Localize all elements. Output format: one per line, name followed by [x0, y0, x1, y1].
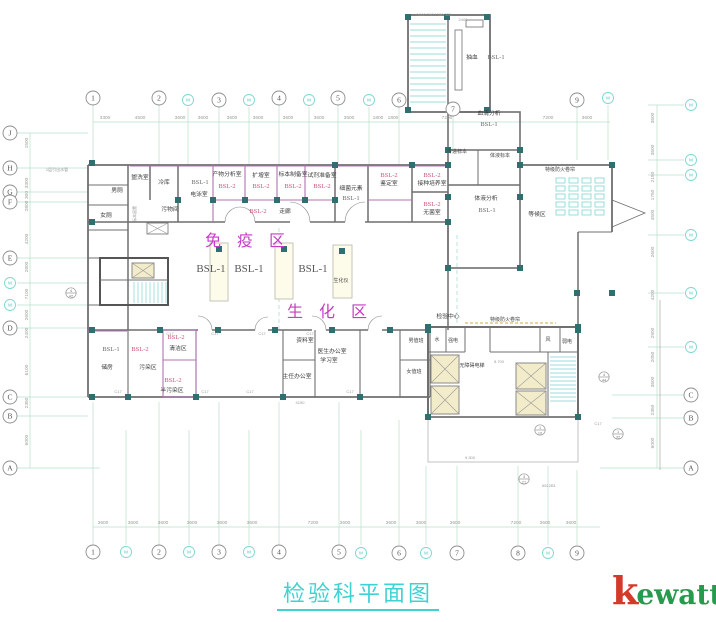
structural-column: [574, 290, 580, 296]
structural-column: [89, 160, 95, 166]
room-label: C17: [114, 389, 122, 394]
dim-text: 2150: [650, 171, 656, 182]
axis-label: A: [688, 464, 694, 473]
waiting-chair: [556, 210, 565, 215]
structural-column: [157, 327, 163, 333]
dim-text: 2800: [24, 261, 30, 272]
room-label: BSL-2: [218, 183, 235, 190]
dim-text: 3600: [217, 520, 228, 526]
room-label: BSL-1: [191, 179, 208, 186]
room-label: BSL-1: [102, 346, 119, 353]
logo-letter-k: k: [612, 568, 638, 613]
room-label: BSL-2: [313, 183, 330, 190]
axis-label: M: [546, 551, 550, 556]
room-label: 特级防火卷帘: [545, 166, 575, 173]
axis-label: 6: [397, 549, 401, 558]
room-label: 特级防火卷帘: [490, 316, 520, 323]
lab-partitions: [88, 165, 447, 397]
room-label: 接种培养室: [418, 179, 447, 187]
bubble-top: 4: [70, 289, 72, 293]
axis-label: M: [307, 98, 311, 103]
axis-label: 1: [91, 548, 95, 557]
dim-text: 3300: [100, 115, 111, 121]
room-label: 男值班: [408, 337, 423, 344]
logo-letters-ewatt: ewatt: [636, 578, 716, 611]
room-label: 等候区: [528, 210, 546, 218]
waiting-chair: [556, 194, 565, 199]
structural-column: [329, 327, 335, 333]
bubble-bottom: 44: [602, 378, 606, 382]
dim-text: 3600: [314, 115, 325, 121]
axis-label: C: [7, 393, 12, 402]
dim-text: 2050: [650, 351, 656, 362]
bubble-bottom: 32: [616, 435, 620, 439]
room-label: 标本留置: [131, 206, 137, 222]
room-label: 生化仪: [333, 277, 348, 284]
waiting-chair: [569, 210, 578, 215]
axis-label: M: [8, 303, 12, 308]
dim-text: 7200: [442, 115, 453, 121]
structural-column: [274, 197, 280, 203]
axis-label: M: [8, 281, 12, 286]
waiting-chair: [595, 202, 604, 207]
drawing-title: 检验科平面图: [0, 576, 716, 608]
room-label: 6512B1: [542, 483, 557, 488]
dim-text: 6000: [650, 437, 656, 448]
dim-text: 2800: [24, 200, 30, 211]
structural-column: [409, 162, 415, 168]
dim-text: 3600: [650, 376, 656, 387]
axis-label: M: [187, 550, 191, 555]
waiting-chair: [595, 178, 604, 183]
structural-column: [339, 248, 345, 254]
bubble-top: 4: [603, 373, 605, 377]
room-label: 走廊: [279, 207, 291, 215]
axis-label: 8: [516, 549, 520, 558]
dim-text: 3600: [283, 115, 294, 121]
dim-text: 3600: [386, 520, 397, 526]
axis-label: M: [247, 98, 251, 103]
room-label: 8.700: [494, 359, 505, 364]
waiting-chair: [569, 202, 578, 207]
room-label: BSL-1: [234, 263, 263, 275]
dim-text: 7200: [308, 520, 319, 526]
room-label: 传递标本: [447, 148, 467, 155]
room-label: 扩增室: [252, 171, 270, 179]
axis-label: 7: [455, 549, 459, 558]
dim-text: 4500: [650, 209, 656, 220]
room-label: C17: [201, 389, 209, 394]
waiting-chair: [556, 202, 565, 207]
axis-label: M: [689, 291, 693, 296]
dim-text: 4200: [650, 289, 656, 300]
dim-text: 1800: [373, 115, 384, 121]
room-label: 产物分析室: [213, 170, 242, 178]
room-label: 储房: [101, 363, 113, 371]
waiting-chair: [556, 186, 565, 191]
structural-column: [332, 197, 338, 203]
room-label: 污物间: [161, 205, 179, 213]
axis-label: 1: [91, 94, 95, 103]
dim-text: 1800: [388, 115, 399, 121]
axis-label: 5: [337, 548, 341, 557]
room-label: 女值班: [406, 368, 421, 375]
axis-label: 9: [575, 96, 579, 105]
dim-text: 7200: [543, 115, 554, 121]
room-label: 清洁区: [169, 344, 187, 352]
room-label: BSL-1: [196, 263, 225, 275]
room-label: 半污染区: [160, 386, 183, 394]
structural-column: [575, 414, 581, 420]
room-label: 资料室: [296, 336, 314, 344]
structural-column: [89, 394, 95, 400]
axis-label: 9: [575, 549, 579, 558]
dim-text: 2900: [650, 327, 656, 338]
axis-label: 3: [217, 548, 221, 557]
structural-column: [445, 194, 451, 200]
axis-label: M: [689, 173, 693, 178]
axis-label: M: [359, 551, 363, 556]
dim-text: 3600: [566, 520, 577, 526]
axis-label: 7: [451, 105, 455, 114]
waiting-chair: [595, 186, 604, 191]
structural-column: [445, 219, 451, 225]
axis-label: C: [688, 391, 693, 400]
room-label: BSL-2: [252, 183, 269, 190]
axis-label: M: [124, 550, 128, 555]
room-label: BSL-1: [487, 54, 504, 61]
room-label: 女厕: [100, 211, 112, 219]
dim-text: 3600: [416, 520, 427, 526]
room-label: BSL-2: [284, 183, 301, 190]
dim-text: 3600: [227, 115, 238, 121]
waiting-chair: [582, 194, 591, 199]
structural-column: [484, 14, 490, 20]
axis-label: M: [689, 233, 693, 238]
axis-label: 2: [157, 548, 161, 557]
dim-text: 7200: [511, 520, 522, 526]
structural-column: [517, 147, 523, 153]
bubble-top: 1: [539, 426, 541, 430]
axis-label: M: [247, 550, 251, 555]
axis-label: H: [7, 164, 13, 173]
room-label: 体液分析: [474, 194, 497, 202]
structural-column: [280, 394, 286, 400]
room-label: 强电: [448, 337, 458, 344]
room-label: 无障碍电梯: [459, 362, 484, 369]
waiting-chair: [569, 178, 578, 183]
room-label: 免 疫 区: [205, 232, 291, 250]
bubble-top: 3: [523, 475, 525, 479]
bubble-top: 1: [617, 430, 619, 434]
structural-column: [175, 197, 181, 203]
waiting-chair: [595, 194, 604, 199]
room-label: 生 化 区: [287, 303, 373, 321]
room-label: 抽血: [466, 53, 478, 61]
structural-column: [425, 414, 431, 420]
room-label: C17: [211, 331, 219, 336]
axis-label: 4: [277, 94, 281, 103]
right-room-block: [448, 112, 520, 268]
room-label: 电泳室: [190, 190, 208, 198]
axis-label: B: [688, 414, 693, 423]
waiting-chair: [582, 202, 591, 207]
room-label: C17: [306, 331, 314, 336]
axis-label: 6: [397, 96, 401, 105]
room-label: 鉴定室: [380, 179, 398, 187]
room-label: 9.300: [465, 455, 476, 460]
structural-column: [445, 162, 451, 168]
axis-label: M: [367, 98, 371, 103]
floor-plan-svg: 12M3M4M5M679M1M2M3M45M6M78M9JHGFEMMDCBAM…: [0, 0, 716, 622]
structural-column: [89, 327, 95, 333]
grid-lines: [17, 105, 684, 545]
axis-label: E: [8, 254, 13, 263]
room-label: 冷库: [158, 178, 170, 186]
room-label: 检验中心: [436, 312, 459, 320]
floor-plan-canvas: 12M3M4M5M679M1M2M3M45M6M78M9JHGFEMMDCBAM…: [0, 0, 716, 622]
structural-column: [242, 197, 248, 203]
dim-text: 3600: [582, 115, 593, 121]
room-label: BSL-1: [342, 195, 359, 202]
room-label: 1000 290 1500 300: [417, 12, 452, 17]
axis-circles: 12M3M4M5M679M1M2M3M45M6M78M9JHGFEMMDCBAM…: [3, 91, 698, 560]
dim-text: 3600: [98, 520, 109, 526]
bubble-bottom: 42: [69, 294, 73, 298]
stair-treads: [134, 24, 576, 401]
room-label: BSL-1: [298, 263, 327, 275]
waiting-chair: [582, 178, 591, 183]
room-label: 血清分析: [477, 109, 500, 117]
axis-label: B: [7, 412, 12, 421]
room-label: BSL-1: [478, 207, 495, 214]
dim-text: 3600: [247, 520, 258, 526]
structural-column: [125, 394, 131, 400]
room-label: 无菌室: [423, 208, 441, 216]
room-label: 体液标本: [490, 152, 510, 159]
room-label: 污染区: [139, 363, 157, 371]
stair-annex: [408, 15, 490, 112]
room-label: 弱电: [562, 338, 572, 345]
structural-column: [302, 197, 308, 203]
room-label: C17: [594, 421, 602, 426]
structural-column: [387, 327, 393, 333]
dim-text: 3600: [340, 520, 351, 526]
dim-text: 3600: [650, 112, 656, 123]
waiting-chair: [582, 210, 591, 215]
room-label: 标本制备室: [279, 170, 308, 178]
dim-text: 3300: [24, 177, 30, 188]
axis-label: J: [9, 129, 12, 138]
dim-text: 4200: [24, 233, 30, 244]
structural-column: [517, 265, 523, 271]
axis-label: M: [689, 345, 693, 350]
bubble-bottom: 10: [538, 431, 542, 435]
walls: [88, 15, 660, 470]
room-label: BSL-2: [164, 377, 181, 384]
room-label: BSL-2: [131, 346, 148, 353]
bubble-bottom: 21: [522, 480, 526, 484]
dim-text: 3600: [253, 115, 264, 121]
room-label: 4150: [296, 400, 306, 405]
room-label: 学习室: [320, 356, 338, 364]
dim-text: 2600: [650, 246, 656, 257]
dim-text: 6100: [24, 364, 30, 375]
room-label: 盥洗室: [131, 173, 149, 181]
structural-column: [425, 324, 431, 330]
dim-text: 2350: [650, 404, 656, 415]
room-label: 风: [545, 337, 550, 343]
room-label: 主任办公室: [283, 372, 312, 380]
waiting-chair: [595, 210, 604, 215]
dim-text: 3600: [540, 520, 551, 526]
structural-column: [332, 162, 338, 168]
room-label: 水: [434, 336, 439, 343]
dim-text: 3600: [128, 520, 139, 526]
room-label: BSL-2: [249, 208, 266, 215]
dim-text: 3500: [344, 115, 355, 121]
structural-column: [575, 327, 581, 333]
structural-column: [445, 265, 451, 271]
structural-column: [272, 327, 278, 333]
structural-column: [357, 394, 363, 400]
room-label: 男厕: [111, 187, 123, 194]
room-label: 细菌元素: [339, 184, 362, 192]
drawing-title-text: 检验科平面图: [277, 581, 439, 611]
room-label: 试剂准备室: [308, 171, 337, 179]
axis-label: M: [689, 103, 693, 108]
room-label: 1层引出水管: [46, 166, 68, 172]
waiting-chair: [556, 178, 565, 183]
structural-column: [405, 14, 411, 20]
dim-text: 3600: [158, 520, 169, 526]
room-label: BSL-2: [423, 201, 440, 208]
dim-text: 300: [24, 191, 30, 199]
axis-label: 5: [336, 94, 340, 103]
axis-label: D: [7, 324, 13, 333]
fixtures: [132, 24, 576, 415]
room-label: BSL-1: [480, 121, 497, 128]
axis-label: 4: [277, 548, 281, 557]
room-label: C17: [246, 389, 254, 394]
axis-label: M: [424, 551, 428, 556]
structural-column: [609, 290, 615, 296]
axis-label: A: [7, 464, 13, 473]
waiting-chair: [582, 186, 591, 191]
dim-text: 6000: [24, 434, 30, 445]
axis-label: 3: [217, 96, 221, 105]
structural-column: [609, 162, 615, 168]
dim-text: 3600: [187, 520, 198, 526]
dim-text: 3600: [175, 115, 186, 121]
structural-column: [210, 197, 216, 203]
room-label: BSL-2: [380, 172, 397, 179]
structural-column: [405, 107, 411, 113]
dim-text: 3600: [650, 144, 656, 155]
dim-text: 2400: [24, 327, 30, 338]
dim-text: 4500: [135, 115, 146, 121]
dim-text: 3600: [198, 115, 209, 121]
dim-text: 2600: [24, 309, 30, 320]
structural-column: [89, 219, 95, 225]
waiting-chair: [569, 186, 578, 191]
kewatt-logo: kewatt: [612, 568, 716, 613]
dim-text: 2350: [24, 397, 30, 408]
axis-label: M: [186, 98, 190, 103]
axis-label: M: [606, 96, 610, 101]
axis-label: M: [689, 158, 693, 163]
room-label: 2400: [459, 17, 469, 22]
dim-text: 7100: [24, 288, 30, 299]
axis-label: 2: [157, 94, 161, 103]
room-label: BSL-2: [423, 172, 440, 179]
structural-column: [517, 162, 523, 168]
structural-column: [517, 194, 523, 200]
room-label: C17: [346, 389, 354, 394]
room-label: C17: [166, 331, 174, 336]
room-label: 医生办公室: [318, 347, 347, 355]
dim-text: 1500: [24, 137, 30, 148]
structural-column: [193, 394, 199, 400]
waiting-chair: [569, 194, 578, 199]
dim-text: 1750: [650, 189, 656, 200]
room-label: C17: [258, 331, 266, 336]
axis-label: F: [8, 198, 12, 207]
dim-text: 3600: [450, 520, 461, 526]
